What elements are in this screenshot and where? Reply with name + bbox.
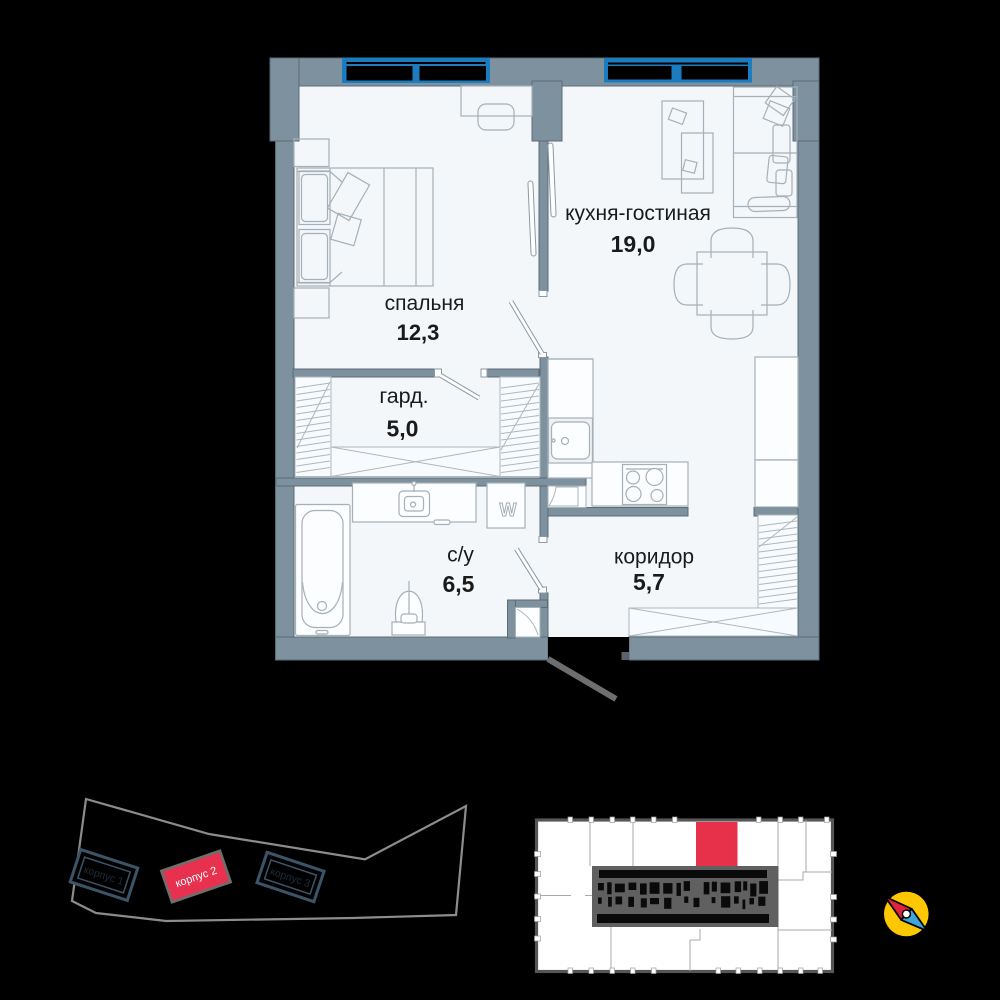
- svg-text:12,3: 12,3: [397, 320, 440, 345]
- svg-text:кухня-гостиная: кухня-гостиная: [565, 202, 711, 225]
- svg-text:19,0: 19,0: [611, 231, 656, 257]
- svg-text:6,5: 6,5: [443, 571, 475, 597]
- svg-text:спальня: спальня: [385, 292, 465, 315]
- svg-text:коридор: коридор: [614, 546, 694, 569]
- svg-text:5,7: 5,7: [633, 569, 665, 595]
- svg-text:5,0: 5,0: [387, 416, 419, 442]
- svg-text:с/у: с/у: [447, 544, 474, 567]
- svg-text:гард.: гард.: [379, 384, 428, 408]
- svg-text:W: W: [500, 500, 517, 520]
